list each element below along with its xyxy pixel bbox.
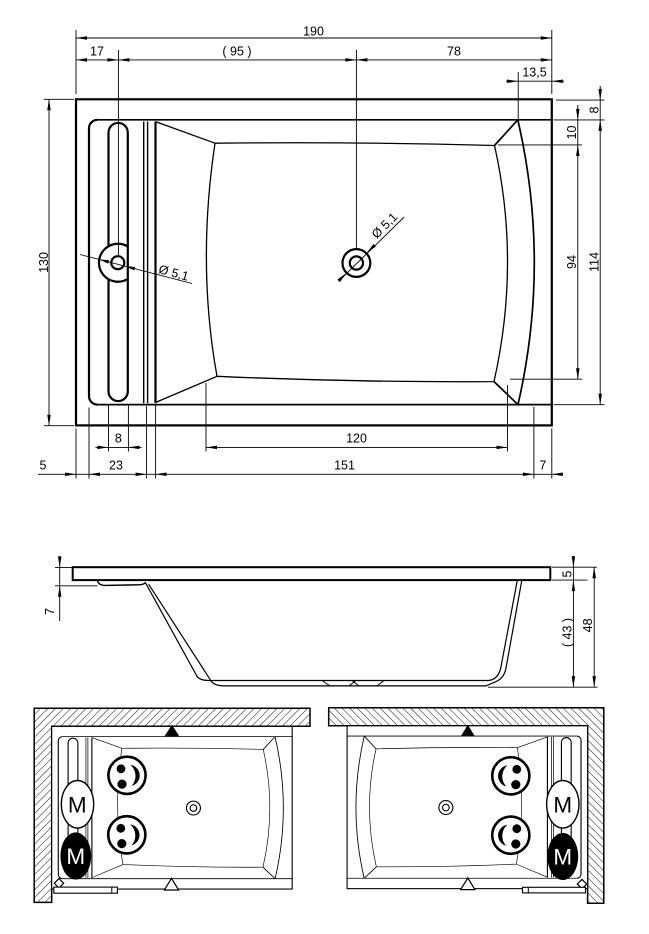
svg-text:8: 8 bbox=[115, 432, 122, 446]
svg-text:94: 94 bbox=[565, 255, 579, 269]
svg-text:M: M bbox=[66, 844, 85, 869]
svg-text:7: 7 bbox=[539, 459, 546, 473]
svg-text:48: 48 bbox=[581, 618, 595, 632]
svg-text:M: M bbox=[68, 792, 87, 817]
svg-text:7: 7 bbox=[43, 608, 57, 615]
svg-text:( 95 ): ( 95 ) bbox=[222, 45, 251, 59]
svg-text:23: 23 bbox=[109, 459, 123, 473]
svg-text:190: 190 bbox=[303, 25, 324, 39]
svg-text:17: 17 bbox=[90, 45, 104, 59]
svg-text:5: 5 bbox=[560, 570, 574, 577]
svg-text:M: M bbox=[553, 845, 572, 870]
svg-text:151: 151 bbox=[334, 459, 355, 473]
svg-text:8: 8 bbox=[588, 106, 602, 113]
svg-text:120: 120 bbox=[346, 432, 367, 446]
svg-text:10: 10 bbox=[565, 126, 579, 140]
svg-text:( 43 ): ( 43 ) bbox=[560, 618, 574, 647]
svg-text:114: 114 bbox=[588, 252, 602, 272]
svg-text:M: M bbox=[553, 792, 572, 817]
svg-text:13,5: 13,5 bbox=[522, 66, 546, 80]
svg-text:78: 78 bbox=[447, 45, 461, 59]
svg-text:130: 130 bbox=[37, 252, 51, 273]
svg-text:5: 5 bbox=[40, 459, 47, 473]
